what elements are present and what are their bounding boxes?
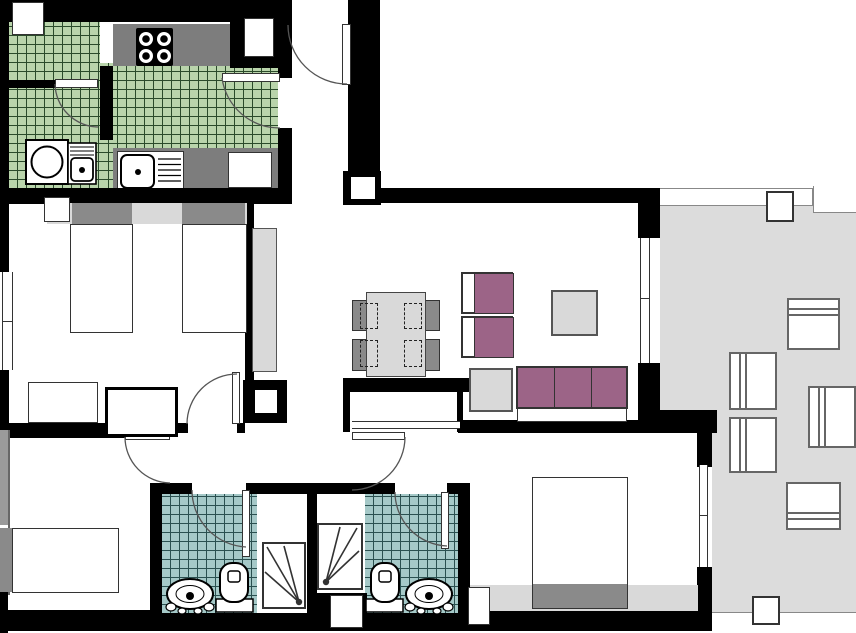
sofa — [516, 366, 628, 409]
twin-bed-1 — [70, 224, 133, 333]
hallway-column-core — [255, 390, 277, 413]
terrace-chair-5 — [786, 482, 841, 530]
master-nightstand — [468, 587, 490, 625]
double-bed-pillow — [533, 584, 627, 608]
wall-bedroom1-bottom-stub — [237, 423, 245, 433]
terrace-chair-1 — [787, 298, 840, 350]
wall-living-top — [380, 188, 660, 203]
apartment-floor-plan — [0, 0, 856, 633]
double-bed — [532, 477, 628, 609]
bedroom1-door-leaf — [232, 372, 240, 424]
bathroom1-door-leaf — [242, 490, 250, 557]
bedroom1-nightstand — [44, 197, 70, 222]
wall-entry-band — [348, 0, 380, 173]
window-mullion — [3, 321, 12, 322]
entry-door-leaf — [342, 24, 351, 85]
lobby-door-leaf — [352, 432, 405, 440]
wall-master-right-upper — [697, 433, 712, 467]
bedroom1-closet-b — [105, 387, 178, 437]
armchair-2-cushion — [474, 317, 514, 358]
utility-box-below-shower2 — [330, 595, 363, 628]
chair-seat-outline-3 — [360, 340, 378, 367]
terrace-pillar-top — [766, 191, 794, 222]
chair-back-line — [739, 354, 741, 408]
chair-back-line — [788, 518, 839, 520]
shower-tray-2 — [317, 523, 363, 590]
sofa-seat-divider — [591, 368, 592, 407]
kitchen-sink-inset — [117, 151, 184, 192]
twin-bed-2 — [182, 224, 247, 333]
wall-bedroom3-corner — [0, 592, 8, 633]
master-window — [699, 465, 708, 567]
chair-seat-outline-1 — [360, 303, 378, 329]
bedroom1-door-arc — [187, 374, 237, 424]
chair-back-line — [789, 308, 838, 310]
corridor-wardrobe — [252, 228, 277, 372]
wall-kitchen-right-lower — [278, 128, 292, 190]
wall-lobby-top — [343, 378, 470, 392]
window-mullion — [700, 515, 707, 516]
wall-bedroom3-bottom — [0, 610, 155, 631]
chair-seat-outline-4 — [404, 340, 422, 367]
wall-master-bottom — [458, 610, 712, 631]
wall-bath-strip-2 — [246, 483, 395, 494]
chair-back-line — [818, 388, 820, 446]
wall-kitchen-partition — [100, 66, 113, 140]
chair-seat-outline-2 — [404, 303, 422, 329]
kitchen-counter-top — [113, 24, 232, 66]
bedroom1-window — [2, 272, 13, 370]
armchair-1-cushion — [474, 273, 514, 314]
terrace-pillar-bottom — [752, 596, 780, 625]
wall-laundry-stub — [8, 80, 55, 88]
bedroom1-pillow-2 — [182, 203, 245, 224]
armchair-1 — [461, 272, 513, 314]
lobby-closet-front — [352, 421, 460, 429]
wall-bathroom1-left — [150, 483, 162, 631]
bathroom2-door-leaf — [441, 492, 449, 549]
wall-bath-bottom — [150, 613, 470, 631]
chair-back-line — [789, 314, 838, 316]
single-bed — [12, 528, 119, 593]
window-mullion — [641, 298, 649, 299]
wall-left-upper — [0, 0, 9, 272]
fridge — [244, 18, 274, 57]
terrace-chair-3 — [729, 417, 777, 473]
exterior-strip-left — [0, 430, 8, 525]
entry-column-core — [351, 177, 375, 199]
wall-living-terrace-upper — [638, 188, 660, 238]
terrace-chair-2 — [729, 352, 777, 410]
entry-door-arc — [288, 25, 347, 84]
laundry-door-leaf — [55, 79, 98, 88]
living-terrace-window — [640, 238, 650, 363]
laundry-floor-tiles — [9, 22, 100, 188]
wall-kitchen-right-upper — [278, 0, 292, 78]
kitchen-door-leaf — [222, 73, 280, 82]
sofa-base — [517, 408, 627, 422]
chair-back-line — [788, 512, 839, 514]
armchair-2 — [461, 316, 513, 358]
bedroom3-door-arc — [125, 437, 170, 483]
chair-back-line — [739, 419, 741, 471]
side-table — [469, 368, 513, 412]
wall-master-corner — [638, 410, 717, 433]
shower-tray-1 — [262, 542, 306, 609]
chair-back-line — [824, 388, 826, 446]
wall-left-mid — [0, 370, 9, 430]
terrace-chair-4 — [808, 386, 856, 448]
chair-back-line — [745, 419, 747, 471]
bedroom1-pillow-1 — [72, 203, 132, 224]
sofa-seat-divider — [554, 368, 555, 407]
bedroom1-closet-a — [28, 382, 98, 423]
kitchen-base-cabinet — [228, 152, 272, 188]
coffee-table — [551, 290, 598, 336]
terrace-step — [813, 186, 856, 213]
chair-back-line — [745, 354, 747, 408]
kitchen-wall-cabinet — [12, 2, 44, 35]
